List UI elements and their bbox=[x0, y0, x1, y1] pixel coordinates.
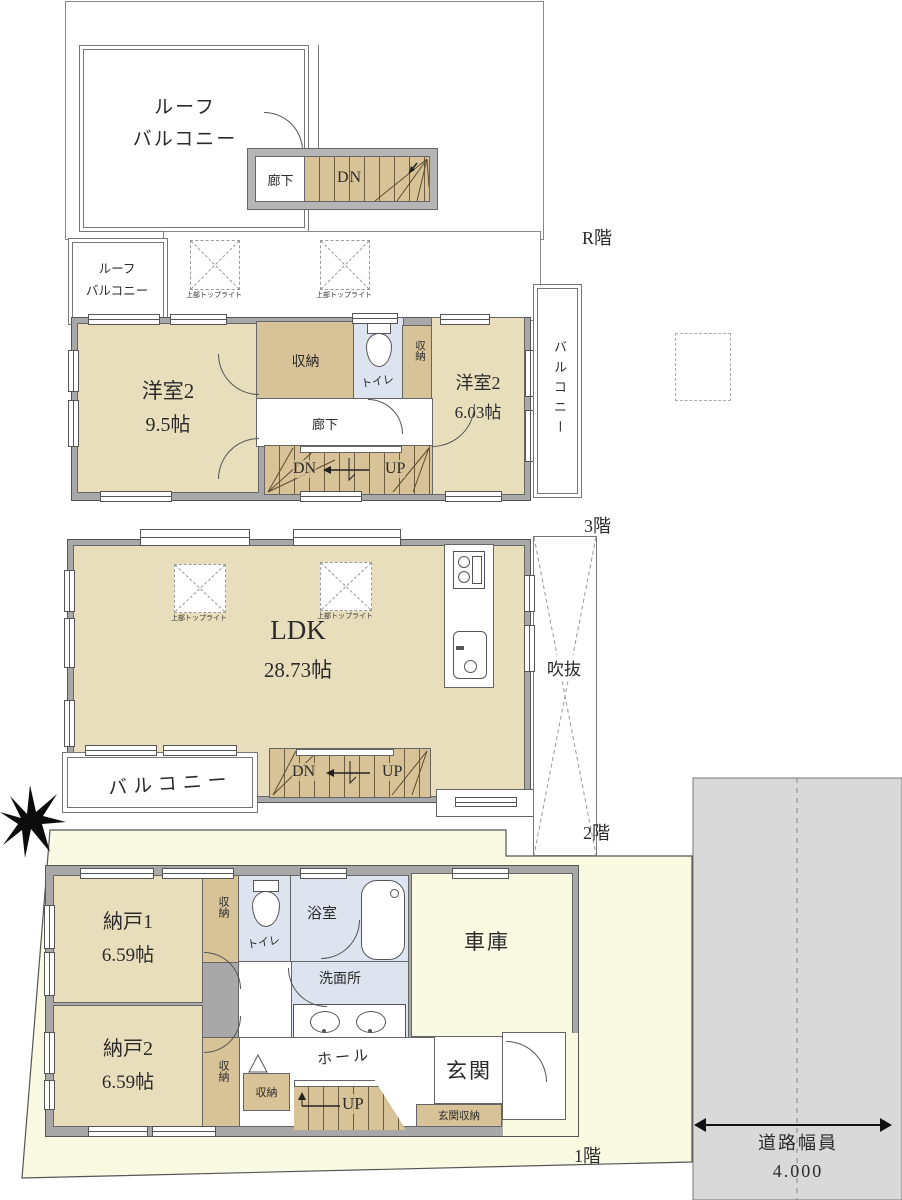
dn-label: DN bbox=[337, 169, 362, 187]
roof-stair-unit: 廊下 DN bbox=[247, 148, 438, 210]
closet-1f-upper: 収納 bbox=[203, 876, 239, 962]
entrance-storage-label: 玄関収納 bbox=[417, 1105, 501, 1126]
bathroom: 浴室 bbox=[291, 876, 408, 962]
closet-3f-right-label: 収納 bbox=[412, 340, 427, 361]
skylight-label: 上部トップライト bbox=[309, 611, 381, 621]
stairs-3f: DN UP bbox=[265, 446, 432, 494]
ldk-size: 28.73帖 bbox=[264, 650, 332, 690]
roof-corridor-label: 廊下 bbox=[256, 157, 305, 201]
building-3f: 洋室2 9.5帖 収納 トイレ 収納 洋室2 6.03帖 廊下 bbox=[72, 318, 530, 500]
room-storage1: 納戸1 6.59帖 bbox=[54, 876, 202, 1002]
window bbox=[162, 868, 234, 879]
window bbox=[80, 868, 154, 879]
stair-landing bbox=[294, 1080, 380, 1087]
up-label-1f: UP bbox=[342, 1094, 364, 1114]
balcony-2f: バルコニー bbox=[62, 752, 258, 813]
roof-balcony-label-line1: ルーフ bbox=[154, 92, 216, 124]
window bbox=[440, 314, 490, 325]
building-1f: 納戸1 6.59帖 納戸2 6.59帖 収納 トイレ 浴室 洗面所 bbox=[46, 866, 578, 1136]
corridor-3f-label: 廊下 bbox=[312, 414, 338, 433]
storage1-name: 納戸1 bbox=[103, 906, 153, 939]
floor-tag-3f: 3階 bbox=[584, 512, 611, 538]
closet-1f-small-label: 収納 bbox=[244, 1074, 289, 1110]
skylight-icon bbox=[320, 562, 372, 611]
room-storage2: 納戸2 6.59帖 bbox=[54, 1006, 202, 1126]
window bbox=[293, 529, 401, 546]
window bbox=[352, 313, 398, 324]
closet-3f-left-label: 収納 bbox=[257, 322, 354, 399]
roof-stairs-dn: DN bbox=[305, 157, 429, 201]
garage: 車庫 bbox=[412, 874, 572, 1036]
closet-1f-upper-label: 収納 bbox=[215, 896, 231, 918]
balcony-3f-label: バルコニー bbox=[550, 340, 569, 440]
road-width-label: 道路幅員 4.000 bbox=[703, 1128, 893, 1186]
skylight-icon bbox=[174, 564, 226, 613]
window bbox=[85, 745, 157, 756]
toilet-room-1f: トイレ bbox=[239, 876, 291, 962]
dashed-reference-box bbox=[675, 333, 731, 401]
window bbox=[163, 745, 237, 756]
window bbox=[452, 868, 509, 879]
window bbox=[44, 952, 55, 996]
stair-landing bbox=[296, 749, 394, 756]
stove-icon bbox=[453, 551, 485, 589]
door-triangle-icon bbox=[248, 1054, 270, 1074]
floor-tag-roof: R階 bbox=[582, 224, 612, 250]
kitchen-island bbox=[445, 545, 493, 687]
floorplan-canvas: ルーフ バルコニー 廊下 DN R階 上部トップライト 上部トップライト ルー bbox=[0, 0, 902, 1200]
balcony-3f: バルコニー bbox=[533, 284, 582, 498]
window bbox=[44, 1032, 55, 1074]
up-label-3f: UP bbox=[385, 460, 405, 478]
window bbox=[64, 570, 75, 612]
closet-3f-right: 収納 bbox=[403, 326, 432, 399]
toilet-3f-label: トイレ bbox=[360, 371, 395, 392]
roof-balcony-3f-line2: バルコニー bbox=[86, 280, 148, 302]
dn-label-2f: DN bbox=[292, 763, 315, 781]
stair-landing bbox=[300, 446, 402, 453]
toilet-1f-label: トイレ bbox=[246, 932, 281, 953]
entrance: 玄関 bbox=[435, 1037, 503, 1103]
road-width-name: 道路幅員 bbox=[758, 1129, 838, 1157]
entrance-label: 玄関 bbox=[435, 1037, 503, 1103]
room-west1-size: 9.5帖 bbox=[146, 408, 191, 442]
vanity-icon bbox=[293, 1004, 406, 1040]
window bbox=[170, 314, 227, 325]
void-column: 吹抜 bbox=[533, 536, 597, 856]
window bbox=[300, 491, 362, 502]
window bbox=[140, 529, 250, 546]
storage1-size: 6.59帖 bbox=[102, 939, 154, 972]
window bbox=[445, 491, 502, 502]
roof-corridor: 廊下 bbox=[256, 157, 305, 201]
hall-label: ホール bbox=[316, 1044, 372, 1070]
window bbox=[152, 1126, 216, 1137]
up-label-2f: UP bbox=[382, 763, 402, 781]
window bbox=[100, 491, 172, 502]
floor-tag-1f: 1階 bbox=[574, 1142, 601, 1168]
window bbox=[524, 625, 535, 672]
roof-balcony-3f-label: ルーフ バルコニー bbox=[72, 250, 162, 310]
skylight-icon bbox=[190, 240, 240, 290]
closet-1f-small: 収納 bbox=[244, 1074, 289, 1110]
window bbox=[44, 905, 55, 949]
stair-fan-lines bbox=[265, 446, 432, 494]
window bbox=[64, 618, 75, 668]
window bbox=[300, 868, 347, 879]
bathtub-icon bbox=[361, 880, 405, 960]
closet-3f-left: 収納 bbox=[257, 322, 354, 399]
room-west1-name: 洋室2 bbox=[142, 374, 195, 408]
toilet-room-3f: トイレ bbox=[354, 318, 403, 399]
skylight-icon bbox=[320, 240, 370, 290]
window bbox=[88, 1126, 148, 1137]
entrance-storage: 玄関収納 bbox=[417, 1105, 501, 1126]
window bbox=[88, 314, 160, 325]
toilet-bowl-icon bbox=[366, 333, 392, 367]
storage2-name: 納戸2 bbox=[103, 1033, 153, 1066]
void-label: 吹抜 bbox=[547, 655, 581, 680]
road-width-value: 4.000 bbox=[773, 1157, 824, 1185]
lot-patch bbox=[503, 1120, 578, 1136]
dn-label-3f: DN bbox=[293, 460, 316, 478]
stair-fan-lines bbox=[305, 157, 429, 201]
corridor-3f: 廊下 bbox=[257, 399, 432, 446]
kitchen-sink-icon bbox=[453, 631, 487, 679]
garage-label: 車庫 bbox=[464, 926, 510, 956]
toilet-bowl-icon bbox=[252, 891, 280, 927]
storage2-size: 6.59帖 bbox=[102, 1066, 154, 1099]
roof-balcony-label-line2: バルコニー bbox=[133, 124, 238, 156]
window bbox=[44, 1080, 55, 1110]
wall-segment bbox=[308, 45, 319, 151]
closet-1f-lower-label: 収納 bbox=[215, 1060, 231, 1082]
room-west2-name: 洋室2 bbox=[456, 368, 501, 398]
skylight-label: 上部トップライト bbox=[163, 613, 235, 623]
stairs-2f: DN UP bbox=[270, 749, 430, 797]
roof-balcony-3f-line1: ルーフ bbox=[99, 258, 136, 280]
skylight-label: 上部トップライト bbox=[178, 290, 250, 300]
window bbox=[64, 700, 75, 747]
window bbox=[524, 575, 535, 612]
floor-tag-2f: 2階 bbox=[583, 819, 610, 845]
window bbox=[68, 350, 79, 392]
skylight-label: 上部トップライト bbox=[308, 290, 380, 300]
roof-balcony-label: ルーフ バルコニー bbox=[115, 88, 255, 160]
window bbox=[68, 400, 79, 447]
window bbox=[455, 797, 517, 807]
